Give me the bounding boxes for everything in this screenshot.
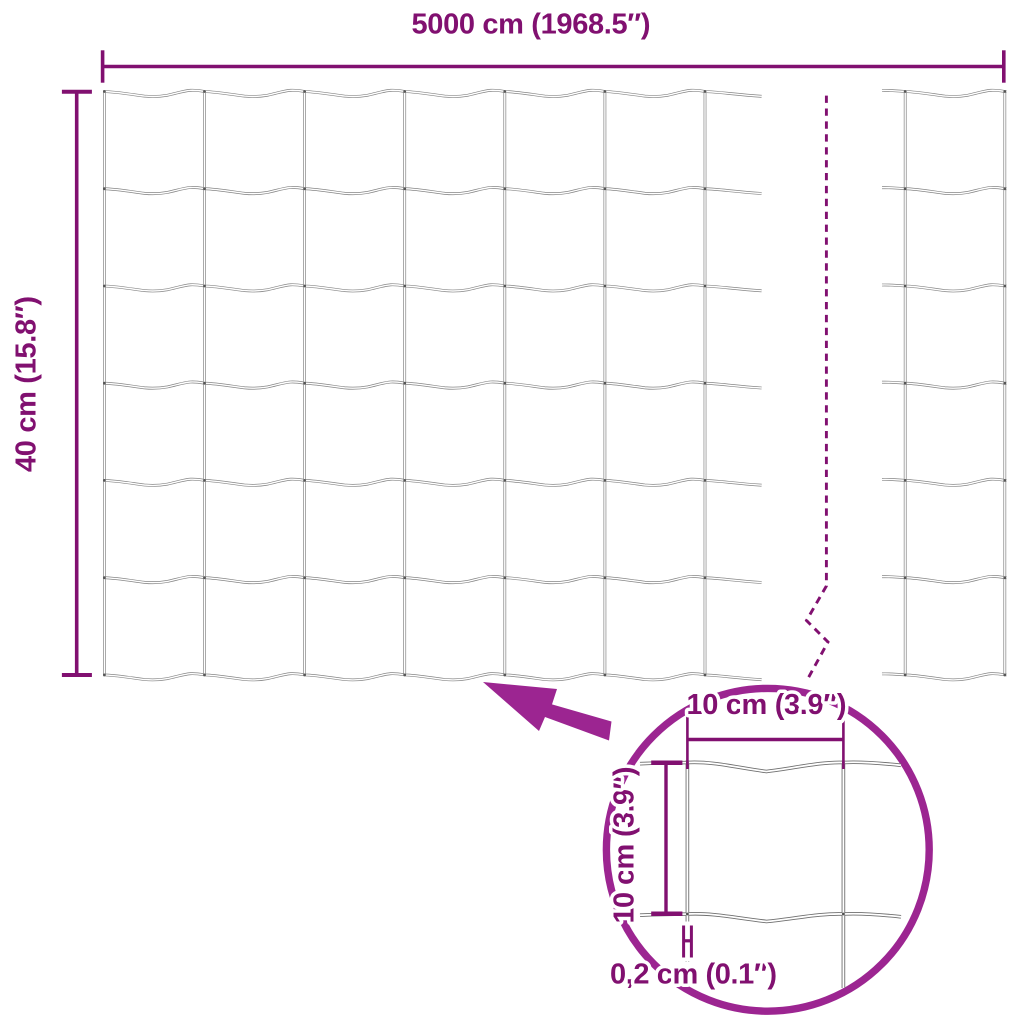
svg-text:0,2 cm (0.1″): 0,2 cm (0.1″) [610,959,777,991]
svg-text:5000 cm (1968.5″): 5000 cm (1968.5″) [412,9,651,41]
svg-text:10 cm (3.9″): 10 cm (3.9″) [609,767,641,924]
svg-text:10 cm (3.9″): 10 cm (3.9″) [687,689,847,721]
svg-text:40 cm (15.8″): 40 cm (15.8″) [11,296,43,472]
